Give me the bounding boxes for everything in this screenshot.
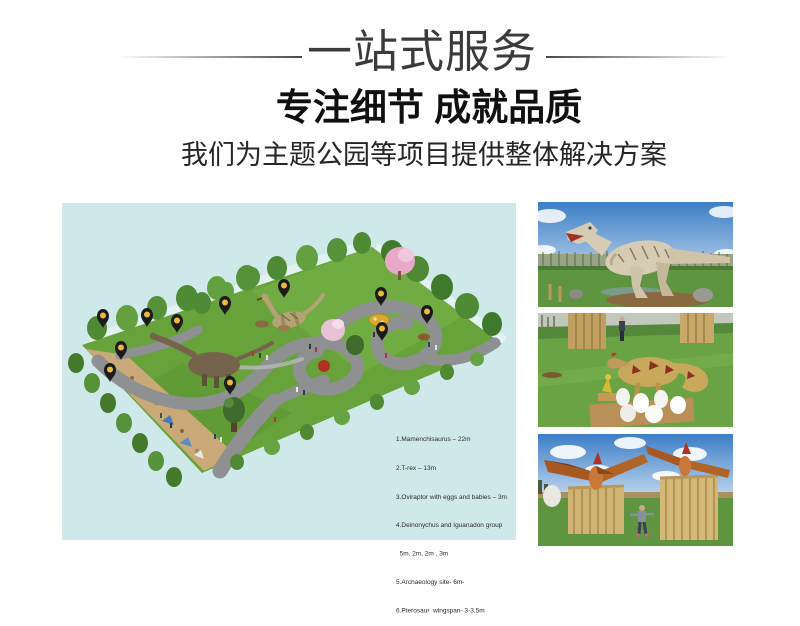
legend-line: 5.Archaeology site- 6m- [396,578,522,588]
legend-line: 2.T-rex – 13m [396,464,522,474]
headline: 专注细节 成就品质 [29,88,800,129]
promo-page: 一站式服务 专注细节 成就品质 我们为主题公园等项目提供整体解决方案 [0,0,800,626]
trex-photo-illustration [538,202,733,307]
photo-raptor-eggs [538,313,733,427]
tagline: 我们为主题公园等项目提供整体解决方案 [24,139,800,171]
photo-trex [538,202,733,307]
right-post-tower [660,476,718,540]
page-title: 一站式服务 [22,27,800,77]
legend-line: 5m, 2m, 2m , 3m [396,549,522,559]
park-map-panel: 1.Mamenchisaurus – 22m 2.T-rex – 13m 3.O… [62,203,516,540]
legend-line: 4.Deinonychus and Iguanadon group [396,521,522,531]
left-post-tower [568,486,624,534]
legend-line: 1.Mamenchisaurus – 22m [396,435,522,445]
egg-decoration [543,485,561,507]
attractions-legend: 1.Mamenchisaurus – 22m 2.T-rex – 13m 3.O… [396,416,522,626]
title-divider-right [546,56,732,58]
raptor-eggs-photo-illustration [538,313,733,427]
pterosaur-photo-illustration [538,434,733,546]
photo-pterosaurs [538,434,733,546]
log [542,372,562,378]
legend-line: 6.Pterosaur wingspan- 3-3.5m [396,606,522,616]
legend-line: 3.Oviraptor with eggs and babies – 3m [396,492,522,502]
